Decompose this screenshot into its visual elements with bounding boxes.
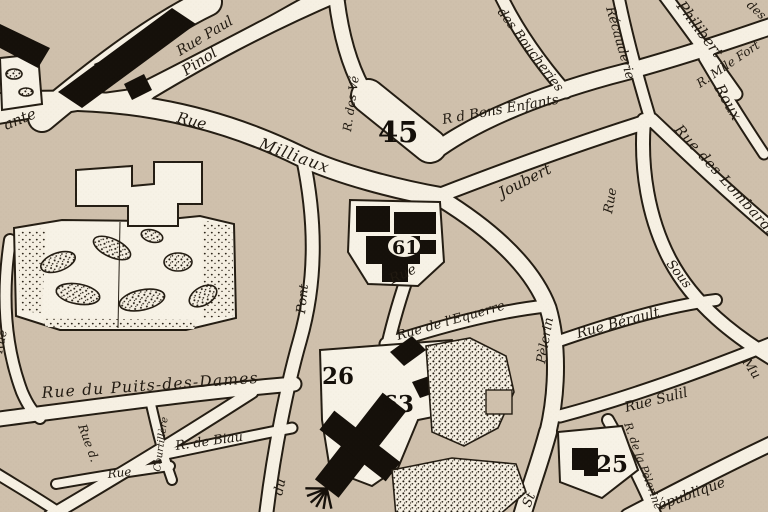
- parcel-number-45: 45: [378, 115, 418, 149]
- parcel-number-63: 63: [382, 391, 414, 418]
- paper-grain: [0, 0, 768, 512]
- street-label-rue-small: Rue: [106, 465, 132, 482]
- map-canvas: ante Pinol Rue Paul Rue Milliaux R. des …: [0, 0, 768, 512]
- parcel-number-25: 25: [596, 451, 628, 478]
- parcel-number-26: 26: [322, 363, 354, 390]
- vintage-map: ante Pinol Rue Paul Rue Milliaux R. des …: [0, 0, 768, 512]
- parcel-number-61: 61: [392, 237, 418, 259]
